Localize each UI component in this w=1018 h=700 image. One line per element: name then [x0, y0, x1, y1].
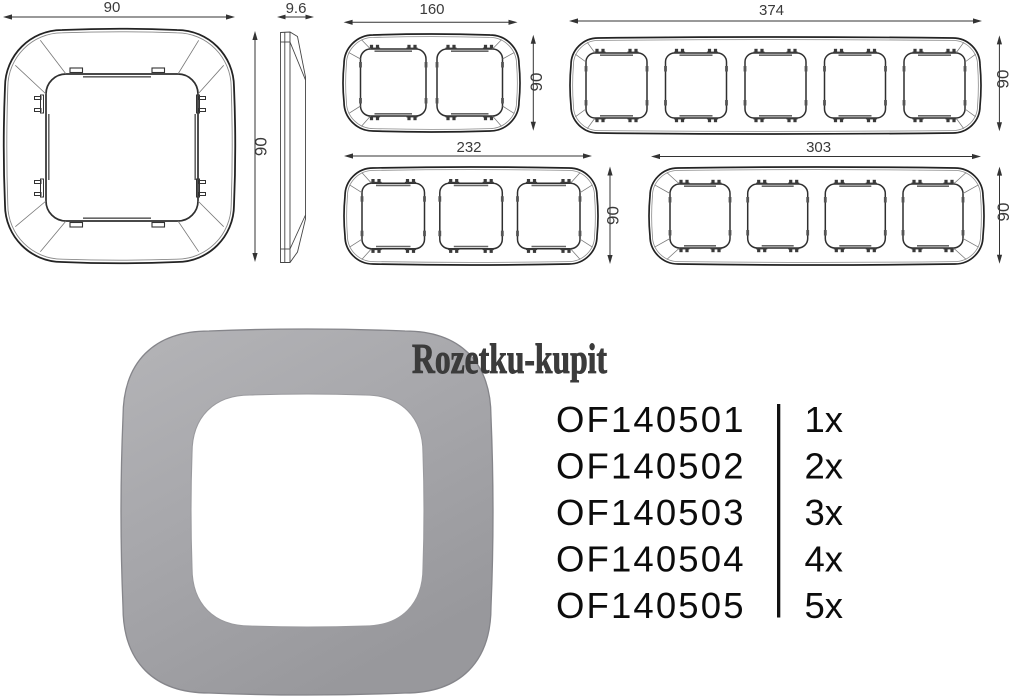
svg-text:9.6: 9.6 — [286, 0, 307, 17]
svg-text:90: 90 — [252, 137, 271, 156]
svg-text:90: 90 — [994, 70, 1013, 89]
svg-text:Rozetku-kupit: Rozetku-kupit — [412, 337, 607, 383]
svg-text:OF140503: OF140503 — [556, 492, 744, 533]
svg-text:2x: 2x — [805, 446, 844, 487]
svg-text:OF140504: OF140504 — [556, 539, 744, 580]
svg-text:OF140505: OF140505 — [556, 585, 744, 626]
svg-text:303: 303 — [806, 139, 831, 156]
svg-text:OF140501: OF140501 — [556, 399, 744, 440]
svg-text:90: 90 — [604, 206, 623, 225]
svg-text:4x: 4x — [805, 539, 844, 580]
svg-text:90: 90 — [994, 203, 1013, 222]
svg-text:3x: 3x — [805, 492, 844, 533]
svg-text:160: 160 — [419, 1, 444, 18]
svg-text:1x: 1x — [805, 399, 844, 440]
svg-text:90: 90 — [527, 73, 546, 92]
svg-text:90: 90 — [104, 0, 121, 16]
svg-text:374: 374 — [759, 2, 784, 19]
svg-text:OF140502: OF140502 — [556, 446, 744, 487]
svg-text:5x: 5x — [805, 585, 844, 626]
svg-text:232: 232 — [456, 139, 481, 156]
